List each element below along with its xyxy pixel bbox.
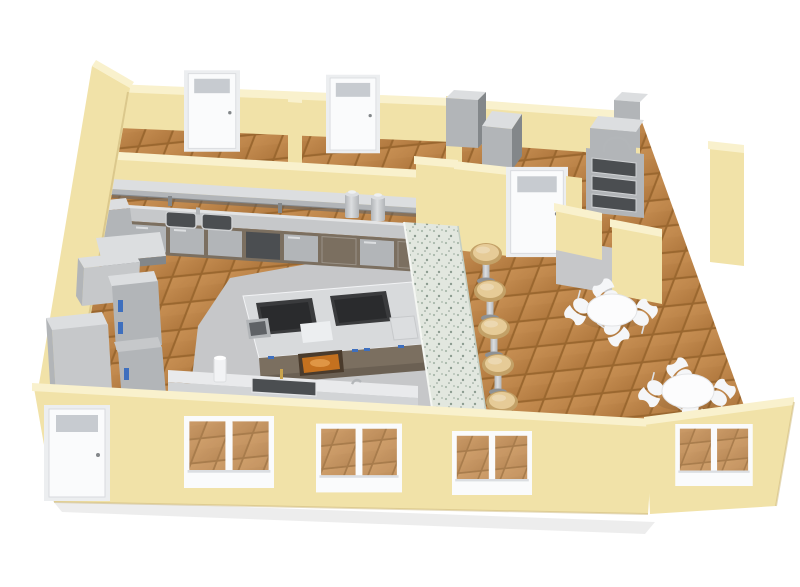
floorplan-render xyxy=(0,0,800,587)
storage-partition-wall xyxy=(288,100,302,168)
dining-table-top xyxy=(587,294,637,326)
storage-door-left xyxy=(184,70,240,151)
front-window-2 xyxy=(316,424,402,493)
island-cutting-board xyxy=(300,321,333,343)
left-gray-machine-2 xyxy=(46,312,112,396)
island-right-module xyxy=(390,316,418,340)
right-window xyxy=(675,424,753,486)
dining-table-top xyxy=(662,374,714,408)
corridor-fridge-box-2 xyxy=(482,111,522,170)
door3-wall-left xyxy=(456,166,508,256)
prep-sink-basin-2 xyxy=(202,214,232,231)
cooking-island xyxy=(243,282,430,384)
corridor-fridge-box-1 xyxy=(446,90,486,148)
storage-door-right xyxy=(326,75,380,154)
handwash-faucet xyxy=(280,369,283,379)
dishwash-wall-front-right xyxy=(612,224,662,304)
storage-partition-top xyxy=(288,97,302,103)
coffee-urn-2 xyxy=(371,193,385,221)
floorplan-svg xyxy=(0,0,800,587)
prep-sink-basin-1 xyxy=(166,211,196,228)
dishwash-wall-right xyxy=(710,146,744,266)
soap-dispenser xyxy=(214,356,226,382)
front-entrance-door xyxy=(44,405,110,501)
prep-sink-faucet xyxy=(196,207,200,214)
coffee-urn-1 xyxy=(345,190,359,218)
front-window-1 xyxy=(184,416,274,488)
front-window-3 xyxy=(452,431,532,495)
